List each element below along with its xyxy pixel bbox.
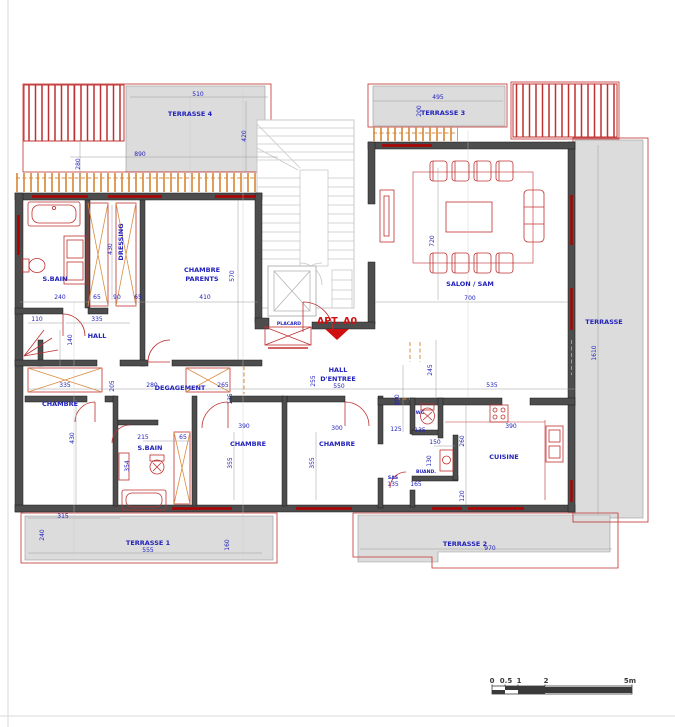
dim-label: 355 <box>227 457 234 469</box>
dim-label: 130 <box>426 455 433 467</box>
dim-label: 390 <box>505 423 517 430</box>
apartment-label: APT. A0 <box>317 316 358 327</box>
room-label-hall-entree: HALL <box>329 366 348 374</box>
dim-label: 205 <box>109 380 116 392</box>
room-label-chambre3: CHAMBRE <box>319 440 355 448</box>
dim-label: 1610 <box>591 345 598 360</box>
dim-label: 240 <box>54 294 66 301</box>
dim-label: 215 <box>137 434 149 441</box>
room-label-cuisine: CUISINE <box>489 453 518 461</box>
dim-label: 390 <box>238 423 250 430</box>
room-label-sbain2: S.BAIN <box>138 444 163 452</box>
dim-label: 410 <box>199 294 211 301</box>
room-label-wc: WC <box>416 410 425 416</box>
dim-label: 420 <box>241 130 248 142</box>
room-label-degagement: DEGAGEMENT <box>155 384 206 392</box>
room-label-sbain-master: S.BAIN <box>43 275 68 283</box>
dim-label: 430 <box>107 243 114 255</box>
scale-tick-label: 0 <box>490 677 495 685</box>
dim-label: 390 <box>394 394 401 406</box>
dim-label: 550 <box>333 383 345 390</box>
scale-tick-label: 1 <box>517 677 522 685</box>
dim-label: 110 <box>31 316 43 323</box>
dim-label: 135 <box>227 393 234 405</box>
room-label-chambre-parents-2: PARENTS <box>185 275 219 283</box>
scale-tick-label: 0.5 <box>500 677 513 685</box>
dim-label: 265 <box>217 382 229 389</box>
dim-label: 430 <box>69 432 76 444</box>
floor-plan: 510 890 420 280 495 200 240 65 90 65 410… <box>0 0 675 727</box>
dim-label: 535 <box>486 382 498 389</box>
dim-label: 510 <box>192 91 204 98</box>
scale-tick-label: 2 <box>544 677 549 685</box>
dim-label: 495 <box>432 94 444 101</box>
dim-label: 700 <box>464 295 476 302</box>
dim-label: 355 <box>309 457 316 469</box>
dim-label: 165 <box>410 481 422 488</box>
room-label-buanderie: BUAND. <box>416 469 436 475</box>
dim-label: 315 <box>57 513 69 520</box>
dim-label: 720 <box>429 235 436 247</box>
room-label-chambre2: CHAMBRE <box>230 440 266 448</box>
dim-label: 150 <box>429 439 441 446</box>
dim-label: 335 <box>91 316 103 323</box>
dim-label: 280 <box>75 158 82 170</box>
dim-label: 135 <box>414 427 426 434</box>
dim-label: 335 <box>59 382 71 389</box>
dim-label: 125 <box>390 426 402 433</box>
room-label-terrasse2: TERRASSE 2 <box>443 540 487 548</box>
dim-label: 890 <box>134 151 146 158</box>
dim-label: 245 <box>427 364 434 376</box>
dim-label: 65 <box>179 434 187 441</box>
room-label-sas: SAS <box>388 475 398 481</box>
room-label-terrasse4: TERRASSE 4 <box>168 110 213 118</box>
dim-label: 555 <box>142 547 154 554</box>
dim-label: 260 <box>459 435 466 447</box>
dim-label: 354 <box>124 460 131 472</box>
room-label-chambre-parents: CHAMBRE <box>184 266 220 274</box>
room-label-terrasse-right: TERRASSE <box>585 318 622 326</box>
dim-label: 65 <box>134 294 142 301</box>
scale-bar: 0 0.5 1 2 5m <box>490 677 637 694</box>
elevator <box>268 266 316 316</box>
room-label-hall-entree-2: D'ENTREE <box>320 375 356 383</box>
room-label-terrasse3: TERRASSE 3 <box>421 109 465 117</box>
dim-label: 135 <box>387 481 399 488</box>
dim-label: 255 <box>310 375 317 387</box>
dim-label: 570 <box>229 270 236 282</box>
scale-bar-graphic <box>492 685 632 695</box>
room-label-hall: HALL <box>88 332 107 340</box>
room-label-salon: SALON / SAM <box>446 280 494 288</box>
room-label-chambre1: CHAMBRE <box>42 400 78 408</box>
room-label-placard: PLACARD <box>277 321 301 327</box>
dim-label: 300 <box>331 425 343 432</box>
dim-label: 240 <box>39 529 46 541</box>
dim-label: 65 <box>93 294 101 301</box>
room-label-terrasse1: TERRASSE 1 <box>126 539 171 547</box>
scale-tick-label: 5m <box>624 677 636 685</box>
dim-label: 90 <box>113 294 121 301</box>
dim-label: 140 <box>67 334 74 346</box>
room-label-dressing: DRESSING <box>117 223 125 260</box>
dim-label: 160 <box>224 539 231 551</box>
floor-plan-page: 510 890 420 280 495 200 240 65 90 65 410… <box>0 0 675 727</box>
dim-label: 120 <box>459 490 466 502</box>
